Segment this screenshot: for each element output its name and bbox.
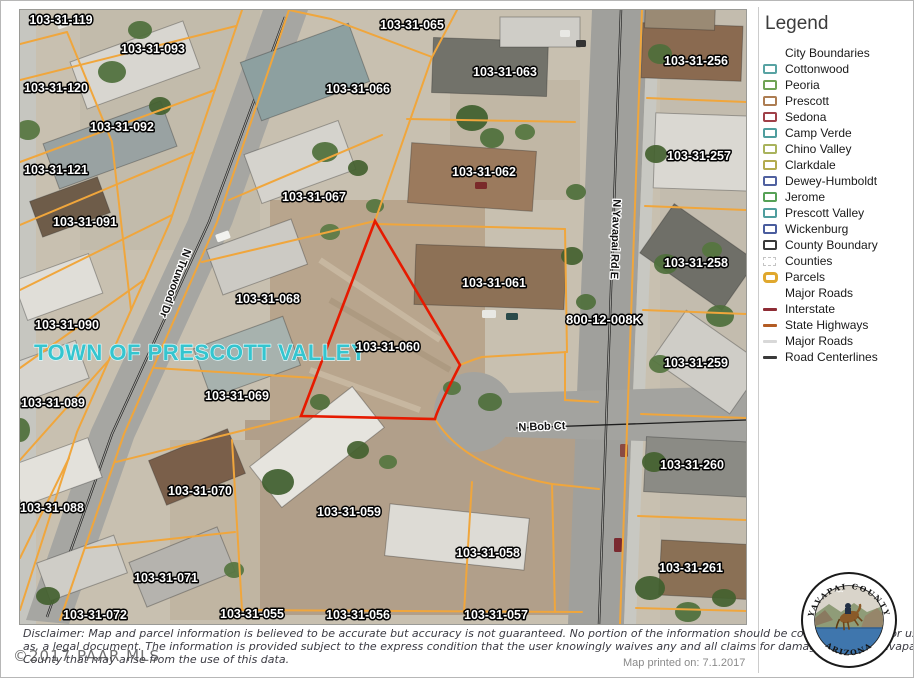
legend-box-swatch <box>763 272 778 283</box>
parcel-label: 103-31-256 <box>664 54 728 68</box>
legend-box-swatch <box>763 208 778 218</box>
parcel-label: 103-31-071 <box>134 571 198 585</box>
parcel-label: 103-31-261 <box>659 561 723 575</box>
legend-item: State Highways <box>763 317 913 333</box>
parcel-label: 103-31-088 <box>20 501 84 515</box>
parcel-label: 103-31-068 <box>236 292 300 306</box>
legend-box-swatch <box>763 160 778 170</box>
parcel-label: 103-31-089 <box>21 396 85 410</box>
legend-item: Dewey-Humboldt <box>763 173 913 189</box>
parcel-label: 103-31-119 <box>29 13 92 27</box>
yavapai-county-seal: YAVAPAI COUNTY ARIZONA <box>799 570 899 670</box>
parcel-label: 103-31-061 <box>462 276 526 290</box>
legend-item: Chino Valley <box>763 141 913 157</box>
parcel-label: 103-31-121 <box>24 163 88 177</box>
copyright-watermark: ©2017 PAAR MLS <box>13 647 160 665</box>
print-date: Map printed on: 7.1.2017 <box>623 657 745 669</box>
legend-item: Parcels <box>763 269 913 285</box>
map-area[interactable]: TOWN OF PRESCOTT VALLEYN Truwood DrN Yav… <box>19 9 747 625</box>
parcel-label: 103-31-067 <box>282 190 346 204</box>
legend-group-header: City Boundaries <box>763 45 913 61</box>
legend-item-label: State Highways <box>785 318 868 332</box>
legend-line-swatch <box>763 324 778 327</box>
legend-box-swatch <box>763 112 778 122</box>
map-print-page: TOWN OF PRESCOTT VALLEYN Truwood DrN Yav… <box>0 0 914 678</box>
parcel-label: 103-31-062 <box>452 165 516 179</box>
road-label: N Bob Ct <box>518 420 566 434</box>
legend-item: Cottonwood <box>763 61 913 77</box>
legend-item: Sedona <box>763 109 913 125</box>
legend-box-swatch <box>763 257 778 266</box>
legend-item-label: Parcels <box>785 270 825 284</box>
legend-line-swatch <box>763 356 778 359</box>
parcel-label: 103-31-055 <box>220 607 284 621</box>
legend-box-swatch <box>763 49 778 58</box>
legend-item: Road Centerlines <box>763 349 913 365</box>
legend-box-swatch <box>763 192 778 202</box>
legend-box-swatch <box>763 289 778 298</box>
parcel-label: 103-31-069 <box>205 389 269 403</box>
legend-item-label: Cottonwood <box>785 62 849 76</box>
legend-panel: Legend City BoundariesCottonwoodPeoriaPr… <box>763 13 913 365</box>
legend-box-swatch <box>763 144 778 154</box>
legend-line-swatch <box>763 340 778 343</box>
parcel-label: 103-31-090 <box>35 318 99 332</box>
parcel-label: 103-31-258 <box>664 256 728 270</box>
legend-item-label: Camp Verde <box>785 126 852 140</box>
legend-item-label: Interstate <box>785 302 835 316</box>
legend-item: Prescott Valley <box>763 205 913 221</box>
legend-box-swatch <box>763 128 778 138</box>
legend-box-swatch <box>763 224 778 234</box>
legend-item-label: Prescott Valley <box>785 206 864 220</box>
parcel-label: 103-31-120 <box>24 81 88 95</box>
legend-items: City BoundariesCottonwoodPeoriaPrescottS… <box>763 45 913 365</box>
legend-box-swatch <box>763 96 778 106</box>
legend-item-label: Counties <box>785 254 832 268</box>
parcel-label: 103-31-092 <box>90 120 154 134</box>
parcel-label: 103-31-072 <box>63 608 127 622</box>
legend-separator <box>758 7 759 673</box>
legend-item-label: Major Roads <box>785 334 853 348</box>
footer: Disclaimer: Map and parcel information i… <box>1 623 914 678</box>
parcel-label: 103-31-070 <box>168 484 232 498</box>
legend-item-label: Sedona <box>785 110 826 124</box>
legend-group-header: Major Roads <box>763 285 913 301</box>
parcel-label: 103-31-065 <box>380 18 444 32</box>
parcel-label: 103-31-259 <box>664 356 728 370</box>
legend-item-label: Clarkdale <box>785 158 836 172</box>
legend-box-swatch <box>763 176 778 186</box>
parcel-label: 103-31-091 <box>53 215 117 229</box>
parcel-label: 103-31-059 <box>317 505 381 519</box>
legend-item-label: Wickenburg <box>785 222 848 236</box>
parcel-label: 103-31-058 <box>456 546 520 560</box>
legend-title: Legend <box>765 13 913 35</box>
legend-item: Interstate <box>763 301 913 317</box>
disclaimer-line: Disclaimer: Map and parcel information i… <box>23 628 768 641</box>
parcel-label: 103-31-063 <box>473 65 537 79</box>
parcel-label: 103-31-257 <box>667 149 731 163</box>
legend-item-label: City Boundaries <box>785 46 870 60</box>
legend-item-label: County Boundary <box>785 238 878 252</box>
parcel-label: 103-31-260 <box>660 458 724 472</box>
aerial-map[interactable]: TOWN OF PRESCOTT VALLEYN Truwood DrN Yav… <box>20 10 746 624</box>
parcel-label: 800-12-008K <box>566 312 642 327</box>
legend-item: County Boundary <box>763 237 913 253</box>
legend-box-swatch <box>763 64 778 74</box>
legend-line-swatch <box>763 308 778 311</box>
legend-item: Peoria <box>763 77 913 93</box>
legend-item-label: Road Centerlines <box>785 350 878 364</box>
parcel-label: 103-31-093 <box>121 42 185 56</box>
legend-item: Major Roads <box>763 333 913 349</box>
legend-item-label: Jerome <box>785 190 825 204</box>
parcel-label: 103-31-066 <box>326 82 390 96</box>
legend-item-label: Prescott <box>785 94 829 108</box>
legend-box-swatch <box>763 80 778 90</box>
legend-item: Jerome <box>763 189 913 205</box>
legend-item-label: Peoria <box>785 78 820 92</box>
legend-item-label: Chino Valley <box>785 142 851 156</box>
legend-item-label: Major Roads <box>785 286 853 300</box>
legend-box-swatch <box>763 240 778 250</box>
legend-item: Camp Verde <box>763 125 913 141</box>
parcel-label: 103-31-057 <box>464 608 528 622</box>
legend-item: Prescott <box>763 93 913 109</box>
legend-item: Wickenburg <box>763 221 913 237</box>
parcel-label: 103-31-060 <box>356 340 420 354</box>
town-label: TOWN OF PRESCOTT VALLEY <box>34 340 366 365</box>
legend-item: Counties <box>763 253 913 269</box>
legend-item: Clarkdale <box>763 157 913 173</box>
legend-item-label: Dewey-Humboldt <box>785 174 877 188</box>
parcel-label: 103-31-056 <box>326 608 390 622</box>
